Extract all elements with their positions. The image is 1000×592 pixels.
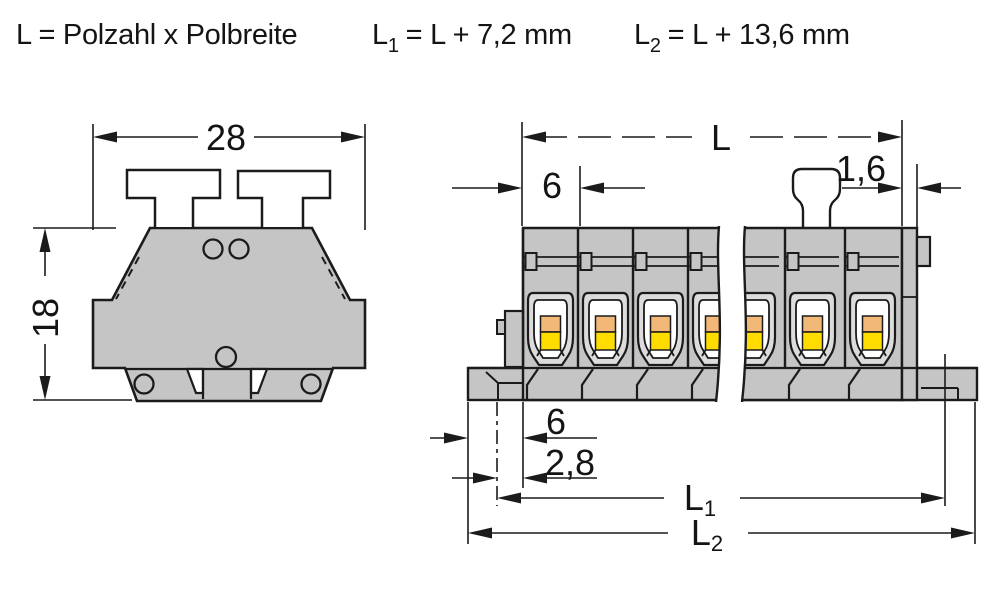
front-hole-bottom-right <box>302 375 321 394</box>
formula-L2: L2= L + 13,6 mm <box>634 19 850 57</box>
end-wall-lug <box>917 237 930 266</box>
dim-6-pitch: 6 <box>452 165 645 226</box>
front-hole-bottom-left <box>135 375 154 394</box>
formula-line: L = Polzahl x Polbreite L1= L + 7,2 mm L… <box>16 19 850 57</box>
dim-28-label: 28 <box>206 117 246 158</box>
formula-L: L = Polzahl x Polbreite <box>16 19 297 51</box>
formula-L1: L1= L + 7,2 mm <box>372 19 572 57</box>
technical-drawing-page: L = Polzahl x Polbreite L1= L + 7,2 mm L… <box>0 0 1000 592</box>
left-side-tab-step <box>497 320 505 334</box>
end-wall <box>902 228 917 400</box>
release-lever <box>793 169 840 227</box>
front-view: 28 18 <box>25 117 365 401</box>
front-hole-bottom-center <box>216 347 236 367</box>
front-hole-top-right <box>230 240 249 259</box>
strip-view: L 6 1,6 6 <box>430 117 977 556</box>
dim-L2-label: L2 <box>691 512 723 556</box>
terminal-block-dimension-drawing: L = Polzahl x Polbreite L1= L + 7,2 mm L… <box>0 0 1000 592</box>
dim-1-6: 1,6 <box>836 148 961 235</box>
front-view-body <box>93 228 365 401</box>
dim-2-8: 2,8 <box>452 402 597 506</box>
dim-6-foot-label: 6 <box>546 401 566 442</box>
dim-2-8-label: 2,8 <box>545 442 595 483</box>
left-side-tab <box>505 311 523 367</box>
dim-1-6-label: 1,6 <box>836 148 886 189</box>
dim-L-label: L <box>711 117 731 158</box>
front-hole-top-left <box>204 240 223 259</box>
dim-6-pitch-label: 6 <box>542 165 562 206</box>
dim-18-label: 18 <box>25 298 66 338</box>
